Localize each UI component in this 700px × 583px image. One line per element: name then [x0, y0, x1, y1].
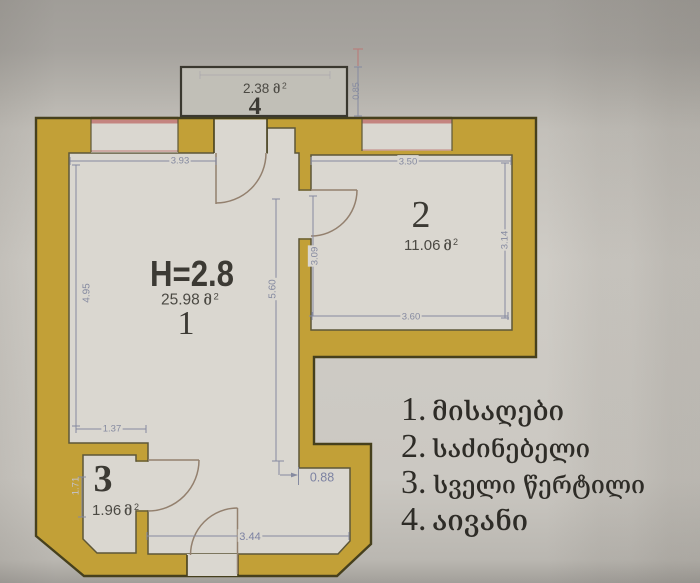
svg-text:3: 3	[94, 458, 113, 500]
svg-text:11.06: 11.06	[404, 237, 440, 254]
svg-text:2: 2	[453, 237, 458, 247]
svg-text:4.: 4.	[401, 501, 427, 538]
svg-text:H=2.8: H=2.8	[150, 253, 234, 294]
svg-text:1.: 1.	[401, 391, 427, 428]
svg-text:2: 2	[134, 502, 139, 512]
svg-text:3.: 3.	[401, 464, 427, 501]
svg-text:1.96: 1.96	[92, 502, 121, 519]
svg-text:2.38: 2.38	[243, 81, 269, 96]
svg-text:0.88: 0.88	[310, 471, 334, 485]
svg-text:1: 1	[178, 305, 195, 342]
svg-text:3.44: 3.44	[239, 531, 260, 543]
svg-text:2.: 2.	[401, 428, 427, 465]
svg-text:5.60: 5.60	[268, 279, 279, 299]
svg-text:3.60: 3.60	[402, 311, 421, 322]
svg-text:3.14: 3.14	[499, 231, 510, 250]
svg-text:2: 2	[282, 81, 287, 91]
svg-text:3.93: 3.93	[171, 155, 190, 166]
svg-text:3.50: 3.50	[399, 156, 418, 167]
svg-text:4.95: 4.95	[82, 283, 93, 303]
svg-text:2: 2	[412, 194, 431, 236]
svg-text:3.09: 3.09	[309, 247, 320, 266]
svg-text:0.85: 0.85	[351, 82, 361, 100]
svg-text:1.37: 1.37	[103, 423, 122, 434]
svg-text:1.71: 1.71	[70, 477, 81, 496]
svg-text:2: 2	[214, 292, 219, 303]
